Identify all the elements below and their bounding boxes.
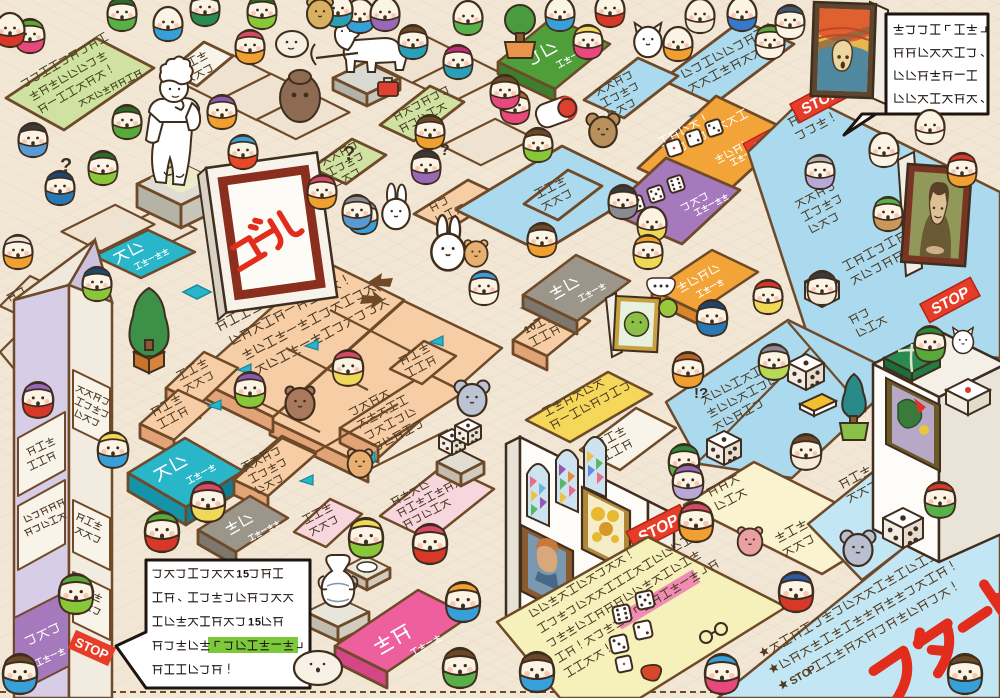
- svg-text:1: 1: [236, 568, 242, 580]
- svg-text:?: ?: [440, 142, 450, 159]
- svg-text:5: 5: [255, 616, 261, 628]
- svg-text:1: 1: [248, 616, 254, 628]
- svg-text:?: ?: [343, 143, 355, 165]
- svg-text:?: ?: [60, 155, 72, 177]
- svg-text:5: 5: [243, 568, 249, 580]
- svg-text:!?: !?: [694, 385, 708, 402]
